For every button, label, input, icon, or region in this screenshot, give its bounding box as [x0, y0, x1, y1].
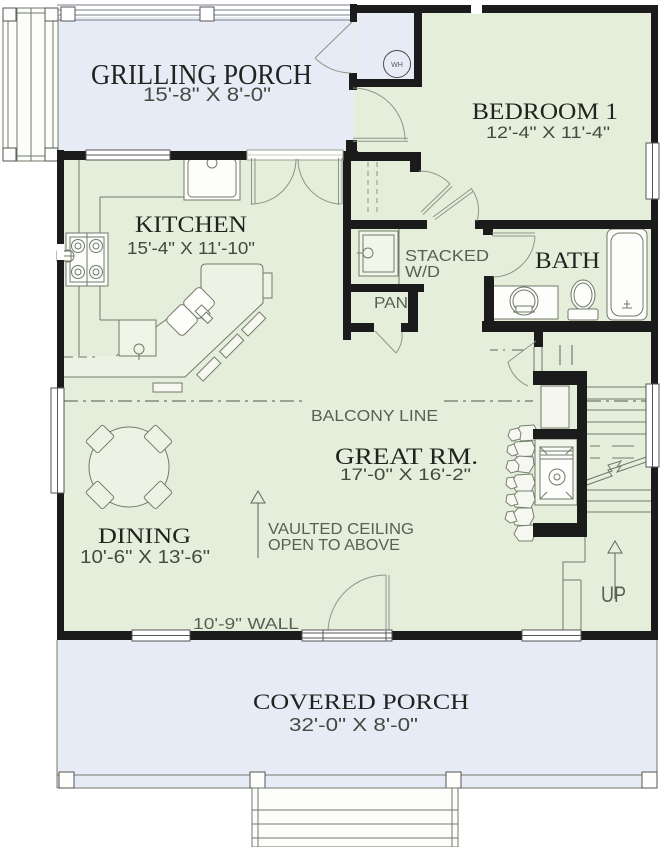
svg-text:15'-4" X 11'-10": 15'-4" X 11'-10"	[127, 238, 255, 258]
svg-text:PAN: PAN	[374, 295, 408, 312]
svg-text:WH: WH	[391, 62, 403, 69]
svg-text:BALCONY LINE: BALCONY LINE	[311, 408, 438, 425]
svg-text:10'-6" X 13'-6": 10'-6" X 13'-6"	[80, 546, 210, 567]
svg-text:10'-9" WALL: 10'-9" WALL	[193, 616, 299, 633]
svg-text:15'-8" X 8'-0": 15'-8" X 8'-0"	[143, 85, 271, 106]
svg-text:W/D: W/D	[405, 264, 440, 281]
svg-text:KITCHEN: KITCHEN	[135, 212, 247, 237]
svg-text:BATH: BATH	[535, 248, 600, 273]
svg-text:BEDROOM 1: BEDROOM 1	[472, 99, 618, 125]
svg-text:UP: UP	[601, 582, 626, 607]
svg-text:STACKED: STACKED	[405, 248, 489, 265]
svg-text:OPEN TO ABOVE: OPEN TO ABOVE	[268, 537, 400, 554]
svg-text:12'-4" X 11'-4": 12'-4" X 11'-4"	[486, 123, 610, 142]
svg-text:COVERED PORCH: COVERED PORCH	[253, 689, 469, 714]
svg-text:17'-0" X 16'-2": 17'-0" X 16'-2"	[340, 466, 471, 484]
svg-text:VAULTED CEILING: VAULTED CEILING	[268, 521, 414, 538]
svg-text:32'-0" X 8'-0": 32'-0" X 8'-0"	[289, 714, 418, 735]
svg-text:DINING: DINING	[98, 523, 191, 548]
